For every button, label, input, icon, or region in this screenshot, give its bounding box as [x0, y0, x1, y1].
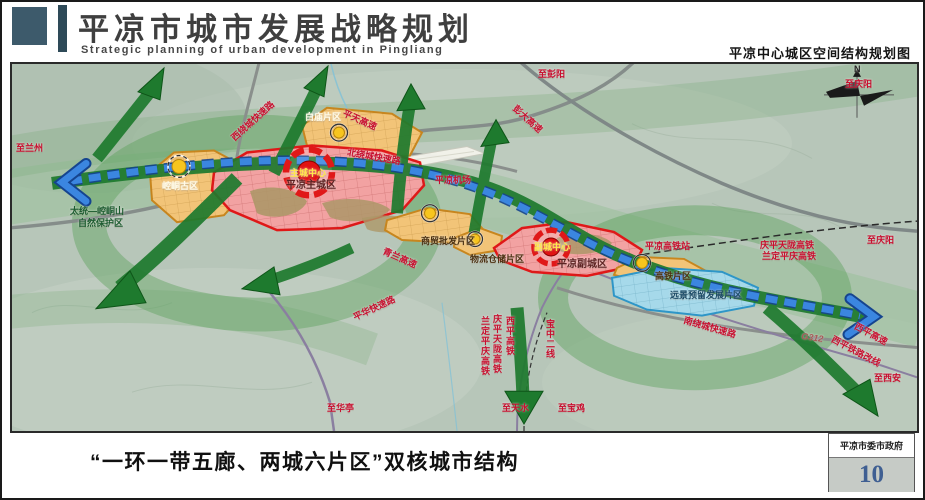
map-area: 白庙片区崆峒古区平凉主城区主城中心商贸批发片区物流仓储片区平凉副城区副城中心高铁… — [10, 62, 919, 433]
page-subtitle-english: Strategic planning of urban development … — [81, 44, 444, 56]
footer: “一环一带五廊、两城六片区”双核城市结构 平凉市委市政府 10 — [2, 433, 923, 498]
map-title: 平凉中心城区空间结构规划图 — [729, 43, 911, 62]
header-decoration-bar — [58, 5, 67, 52]
map-graphic — [12, 64, 917, 431]
planning-poster-page: 平凉市城市发展战略规划 Strategic planning of urban … — [0, 0, 925, 500]
header: 平凉市城市发展战略规划 Strategic planning of urban … — [2, 2, 923, 62]
page-number: 10 — [829, 458, 914, 492]
page-title: 平凉市城市发展战略规划 — [78, 4, 474, 49]
header-decoration-square — [12, 7, 47, 45]
agency-name: 平凉市委市政府 — [829, 434, 914, 458]
map-caption: “一环一带五廊、两城六片区”双核城市结构 — [90, 446, 519, 476]
agency-page-box: 平凉市委市政府 10 — [828, 433, 915, 492]
